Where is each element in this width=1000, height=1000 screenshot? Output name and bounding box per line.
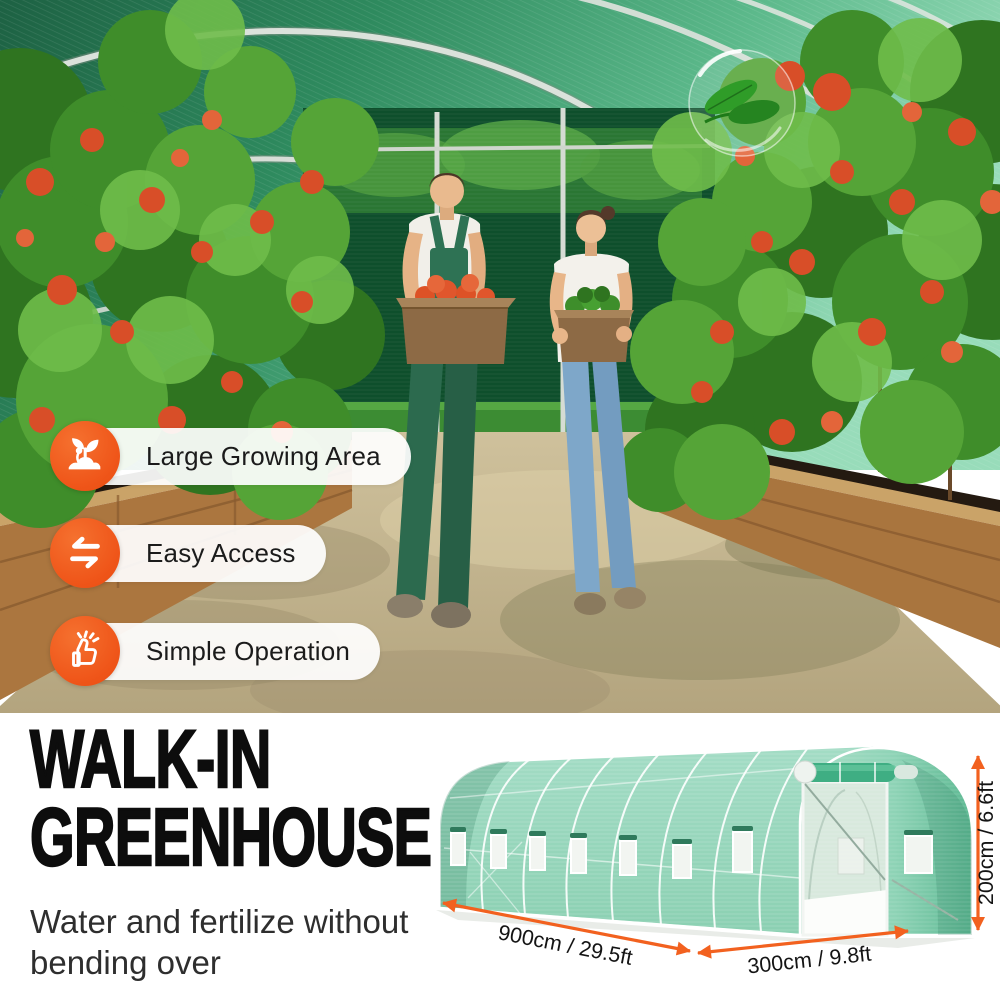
greenhouse-dimension-diagram: 900cm / 29.5ft 300cm / 9.8ft 200cm / 6.6…	[430, 720, 1000, 975]
door	[803, 782, 887, 935]
product-subtitle: Water and fertilize without bending over	[30, 902, 408, 984]
leaf-bubble	[689, 50, 795, 156]
height-dimension-label: 200cm / 6.6ft	[974, 781, 998, 905]
product-title-line2: GREENHOUSE	[30, 799, 431, 877]
sprout-icon	[50, 421, 120, 491]
product-title: WALK-IN GREENHOUSE	[30, 721, 431, 877]
swap-arrows-icon	[50, 518, 120, 588]
greenhouse-scene	[0, 0, 1000, 713]
product-subtitle-line2: bending over	[30, 943, 408, 984]
feature-badge-easy-access: Easy Access	[50, 518, 326, 588]
feature-label: Simple Operation	[146, 636, 350, 667]
feature-label: Easy Access	[146, 538, 296, 569]
thumbs-up-icon	[50, 616, 120, 686]
greenhouse-photo: Large Growing Area Easy Access	[0, 0, 1000, 713]
feature-label: Large Growing Area	[146, 441, 381, 472]
product-subtitle-line1: Water and fertilize without	[30, 902, 408, 943]
product-title-line1: WALK-IN	[30, 721, 431, 799]
greenhouse-product-image: Large Growing Area Easy Access	[0, 0, 1000, 1000]
feature-badge-large-growing-area: Large Growing Area	[50, 421, 411, 491]
greenhouse-front	[794, 748, 972, 935]
info-section: WALK-IN GREENHOUSE Water and fertilize w…	[0, 713, 1000, 1000]
feature-badge-simple-operation: Simple Operation	[50, 616, 380, 686]
